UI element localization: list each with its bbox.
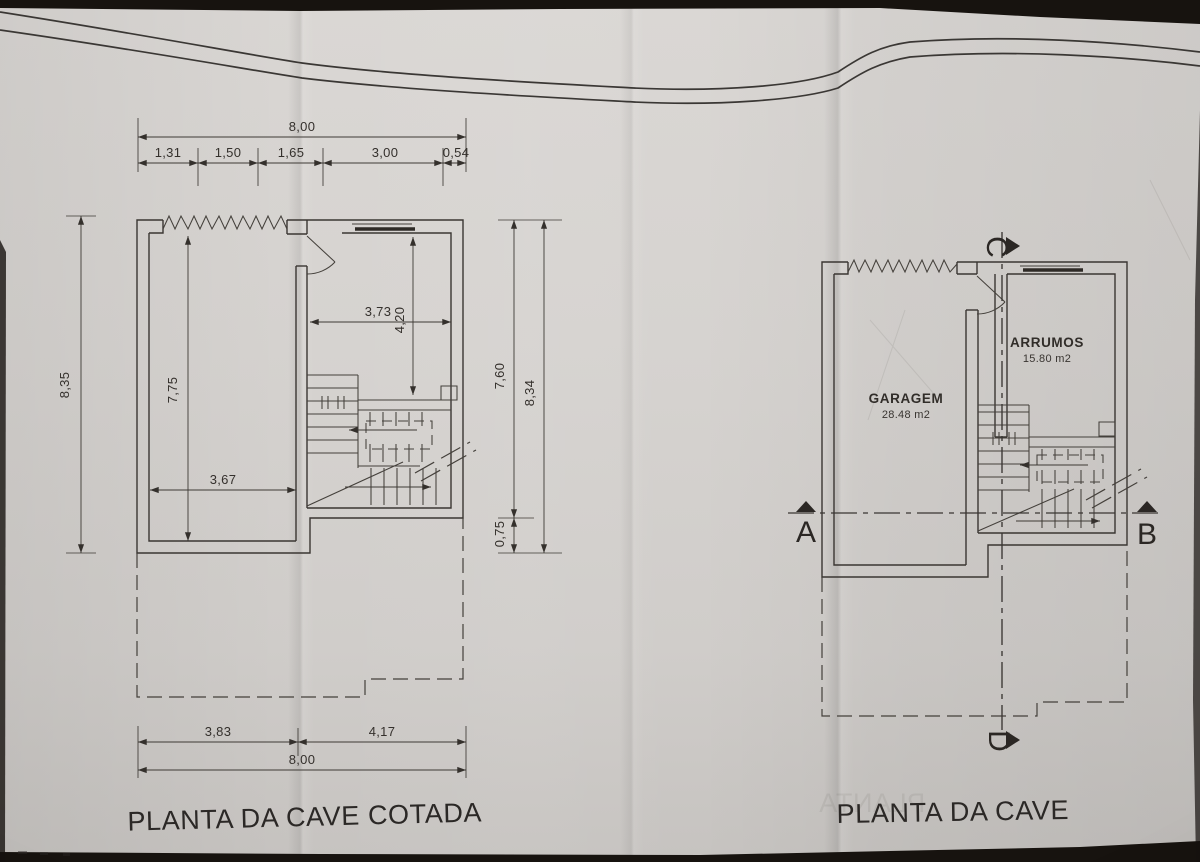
dim-label-bottom-left: 3,83 [205, 724, 232, 739]
room-area-storage: 15.80 m2 [1023, 353, 1071, 365]
right-plan: PLANTA [788, 180, 1190, 829]
door-swing [977, 276, 1005, 314]
paper-bleed-through: PLANTA [819, 180, 1190, 818]
wall-niche [1099, 422, 1115, 436]
window-symbol [1020, 266, 1083, 270]
dim-label-garage-height: 7,75 [165, 377, 180, 404]
garage-door-zigzag [848, 260, 957, 272]
section-marker-c: C [980, 236, 1020, 258]
stair-break-line [1086, 469, 1147, 508]
dim-label-seg-5: 0,54 [443, 145, 470, 160]
left-plan-walls [137, 220, 463, 553]
svg-text:B: B [1137, 518, 1157, 551]
dim-label-seg-1: 1,31 [155, 145, 182, 160]
dim-label-garage-width: 3,67 [210, 472, 237, 487]
dim-label-room-width: 3,73 [365, 304, 392, 319]
dim-label-bottom-overall: 8,00 [289, 752, 316, 767]
stair-break-line [415, 442, 476, 481]
dim-label-seg-2: 1,50 [215, 145, 242, 160]
photo-of-floor-plan-sheet: 8,00 1,31 1,50 1,65 3,00 0,54 8,35 7,75 … [0, 0, 1200, 862]
window-symbol [352, 224, 415, 229]
handrail-dashed [1037, 455, 1103, 482]
dimension-extension-lines [66, 118, 562, 778]
projection-outline-dashed [137, 518, 463, 697]
room-label-storage: ARRUMOS [1010, 335, 1084, 350]
dim-label-bottom-right: 4,17 [369, 724, 396, 739]
photo-dark-edges [0, 0, 1200, 862]
door-swing [307, 236, 335, 274]
sheet-border-line [0, 12, 1200, 103]
dim-label-right-lower: 0,75 [492, 521, 507, 548]
dim-label-room-depth: 4,20 [392, 307, 407, 334]
dim-label-height-right: 8,34 [522, 380, 537, 407]
dim-label-height-left: 8,35 [57, 372, 72, 399]
floor-plan-drawing: 8,00 1,31 1,50 1,65 3,00 0,54 8,35 7,75 … [0, 0, 1200, 862]
staircase [978, 405, 1147, 531]
garage-door-zigzag [163, 216, 287, 229]
dim-label-seg-4: 3,00 [372, 145, 399, 160]
right-plan-title: PLANTA DA CAVE [836, 795, 1069, 829]
wall-niche [441, 386, 457, 400]
svg-text:A: A [796, 516, 816, 549]
projection-outline-dashed [822, 545, 1127, 716]
left-plan-title: PLANTA DA CAVE COTADA [127, 797, 482, 836]
section-marker-a: A [796, 501, 816, 549]
dim-label-right-upper: 7,60 [492, 363, 507, 390]
section-marker-b: B [1137, 501, 1157, 551]
dim-label-top-overall: 8,00 [289, 119, 316, 134]
stair-break-ticks [322, 396, 344, 409]
svg-text:C: C [980, 236, 1013, 258]
room-area-garage: 28.48 m2 [882, 409, 930, 421]
room-label-garage: GARAGEM [869, 391, 944, 406]
section-marker-d: D [982, 730, 1020, 752]
svg-text:D: D [982, 730, 1015, 752]
left-plan: 8,00 1,31 1,50 1,65 3,00 0,54 8,35 7,75 … [57, 118, 562, 837]
dim-label-seg-3: 1,65 [278, 145, 305, 160]
